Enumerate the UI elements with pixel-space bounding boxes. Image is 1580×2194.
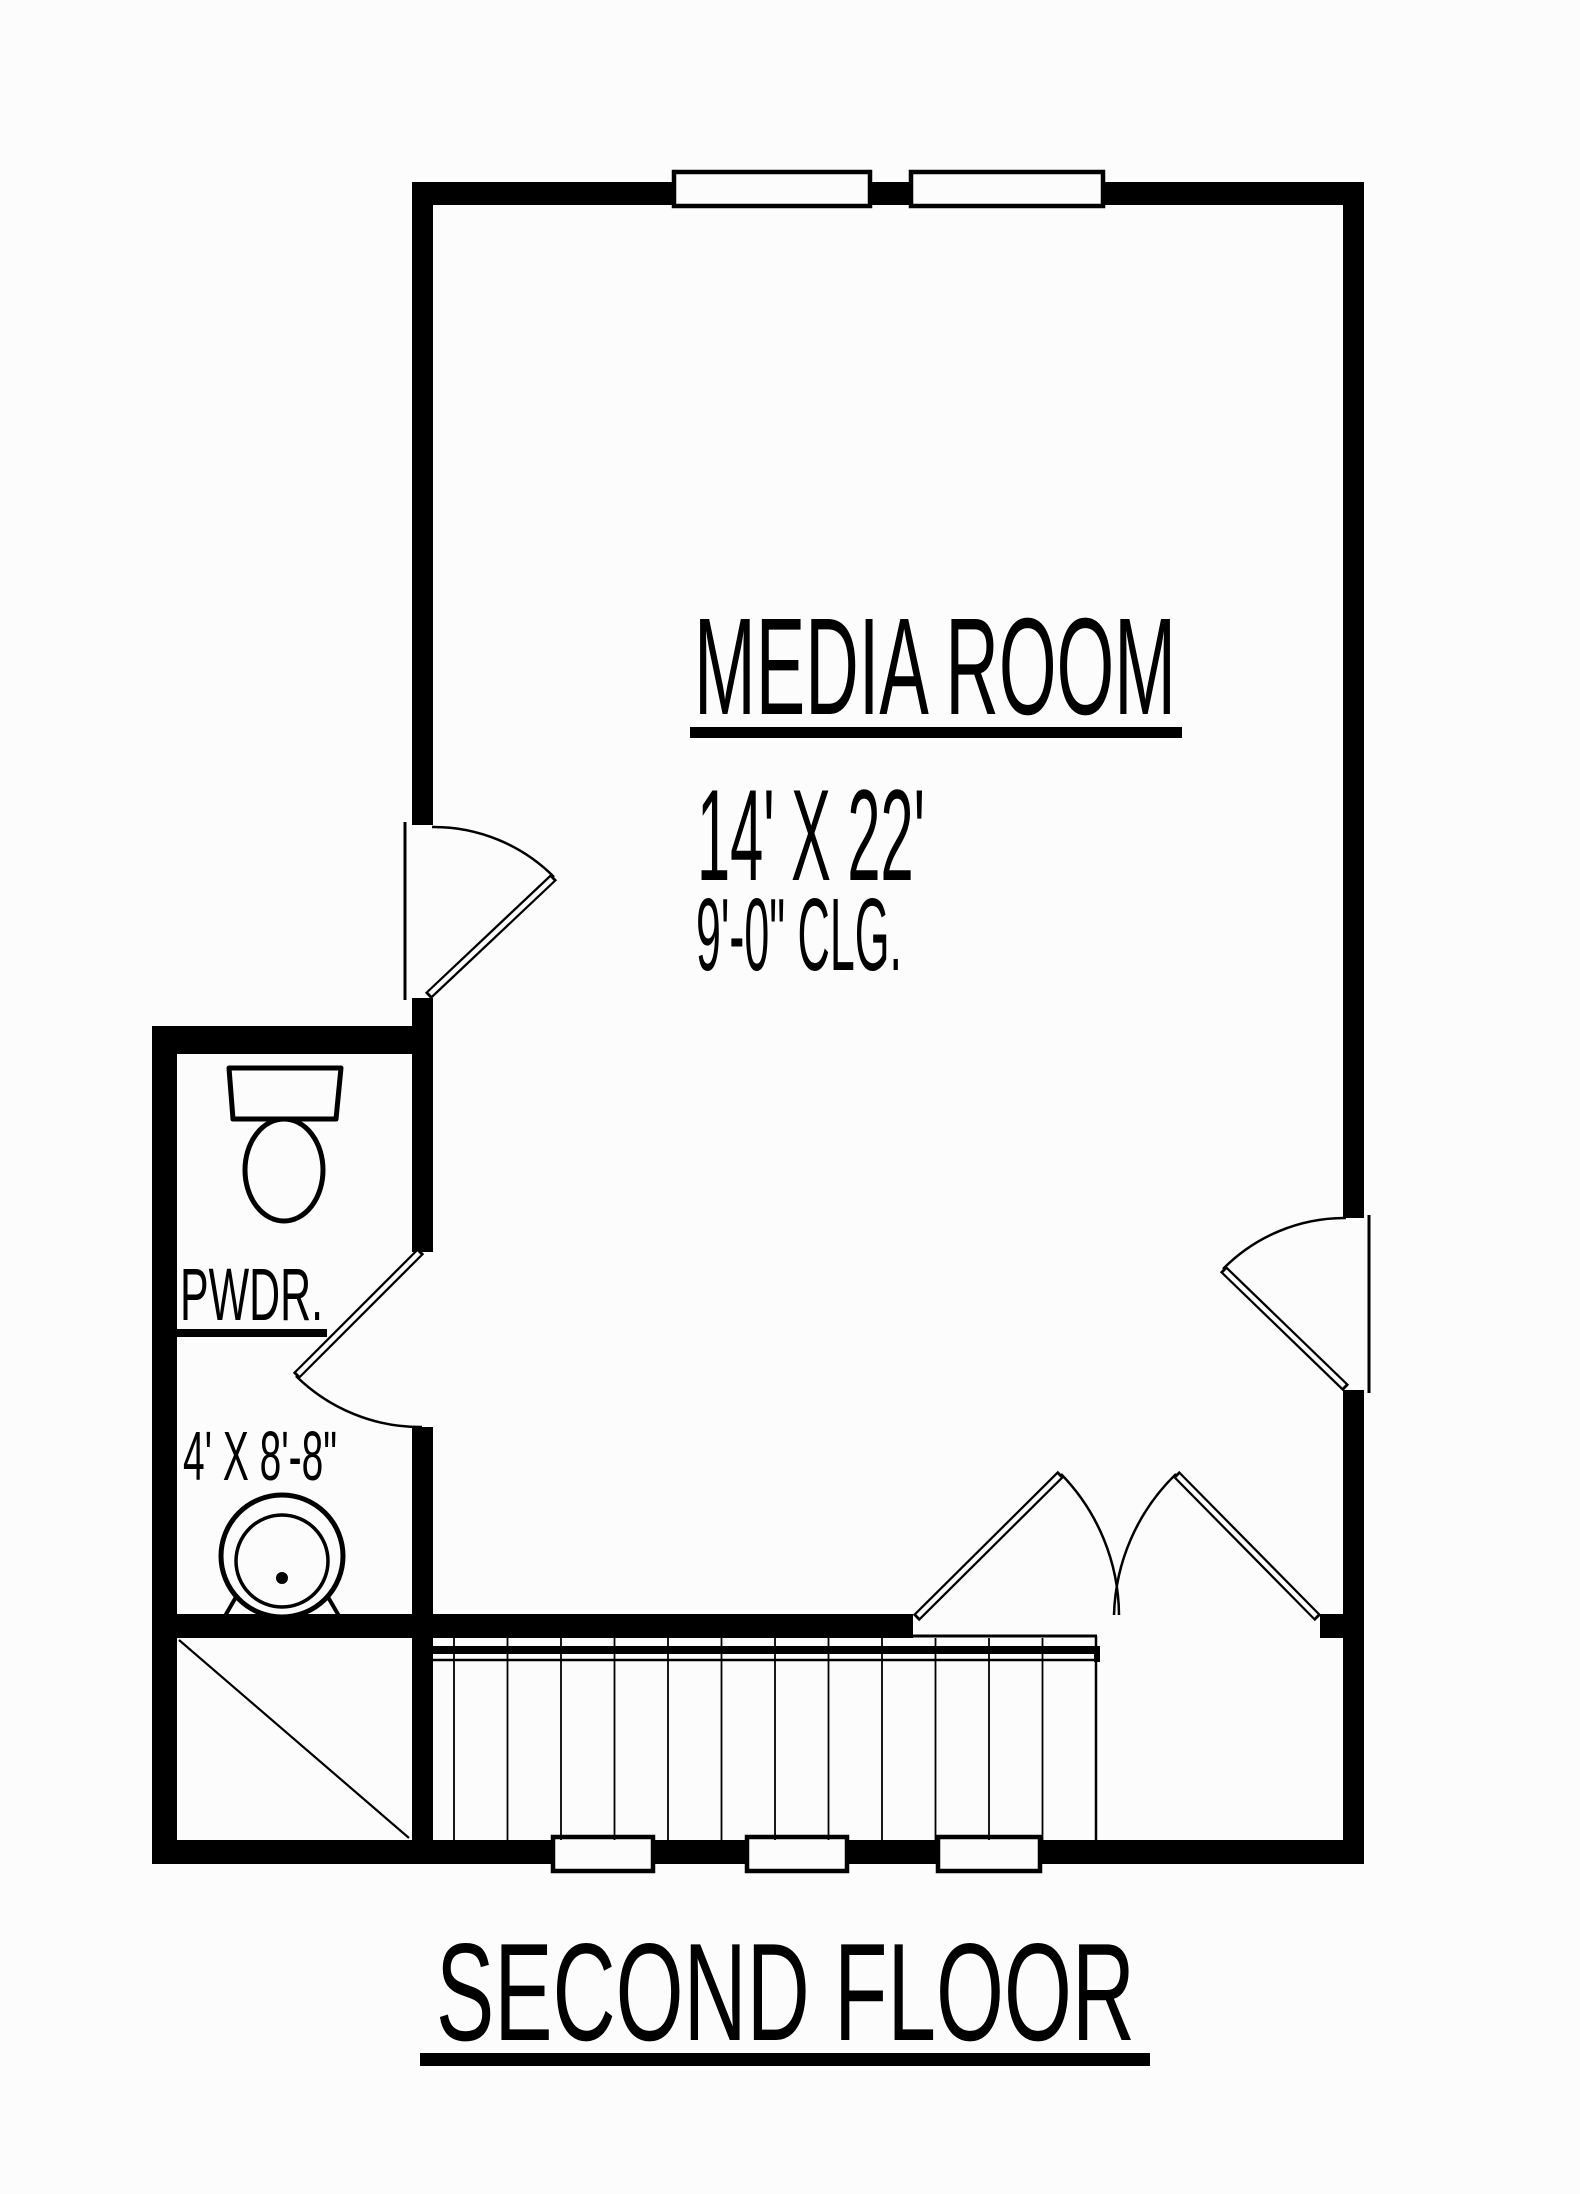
door-swing-arc-right [1114, 1474, 1176, 1615]
floor-title: SECOND FLOOR [436, 1915, 1135, 2070]
pedestal-sink [221, 1495, 343, 1617]
door-swing-arc-left [1061, 1474, 1119, 1615]
toilet-bowl [245, 1119, 323, 1221]
powder-room-label: PWDR. [180, 1253, 323, 1336]
floor-plan-sheet: MEDIA ROOM 14' X 22' 9'-0" CLG. PWDR. 4'… [0, 0, 1580, 2194]
door-leaf [1223, 1269, 1346, 1388]
stair-handrail-band [433, 1646, 1100, 1654]
powder-room-top-wall [152, 1026, 433, 1054]
bottom-window-middle [747, 1837, 847, 1871]
media-room-right-door [1223, 1215, 1369, 1393]
door-leaf-left [916, 1474, 1061, 1618]
sink-pedestal-edge [225, 1597, 236, 1616]
powder-room-size-label: 4' X 8'-8" [183, 1417, 337, 1495]
top-window-left [674, 172, 870, 206]
stair-handrail-endcap [1094, 1646, 1100, 1662]
toilet-tank [229, 1068, 341, 1119]
divider-wall [152, 1614, 913, 1638]
media-room-underline [690, 727, 1182, 738]
door-leaf-right [1176, 1474, 1318, 1618]
toilet [229, 1068, 341, 1221]
media-room: MEDIA ROOM 14' X 22' 9'-0" CLG. [690, 590, 1182, 992]
staircase [433, 1636, 1100, 1840]
floor-plan: MEDIA ROOM 14' X 22' 9'-0" CLG. PWDR. 4'… [0, 0, 1580, 2194]
door-swing-arc [1223, 1218, 1346, 1269]
bottom-window-left [553, 1837, 653, 1871]
media-room-entry-door [405, 822, 554, 1000]
right-wall-upper [1343, 182, 1364, 1218]
left-wall-upper [412, 182, 433, 825]
walls [152, 182, 1364, 1864]
powder-room-left-wall [152, 1026, 177, 1864]
stair-treads [454, 1636, 1096, 1840]
powder-room-underline [173, 1329, 327, 1337]
french-doors [916, 1474, 1318, 1618]
floor-title-underline [420, 2053, 1150, 2066]
sheet-title: SECOND FLOOR [420, 1915, 1150, 2070]
sink-pedestal-edge [328, 1597, 339, 1616]
door-swing-arc [432, 827, 554, 877]
top-window-right [911, 172, 1103, 206]
closet [179, 1640, 409, 1838]
media-room-label: MEDIA ROOM [694, 590, 1176, 744]
top-wall [412, 182, 1364, 205]
closet-diagonal [179, 1640, 409, 1838]
sink-drain [276, 1572, 288, 1584]
door-leaf [428, 877, 554, 996]
left-wall-lower [412, 1427, 433, 1864]
powder-room: PWDR. 4' X 8'-8" [173, 1253, 337, 1495]
french-door-right-stub [1320, 1614, 1364, 1638]
media-room-ceiling-label: 9'-0" CLG. [696, 877, 902, 992]
bottom-window-right [938, 1837, 1040, 1871]
